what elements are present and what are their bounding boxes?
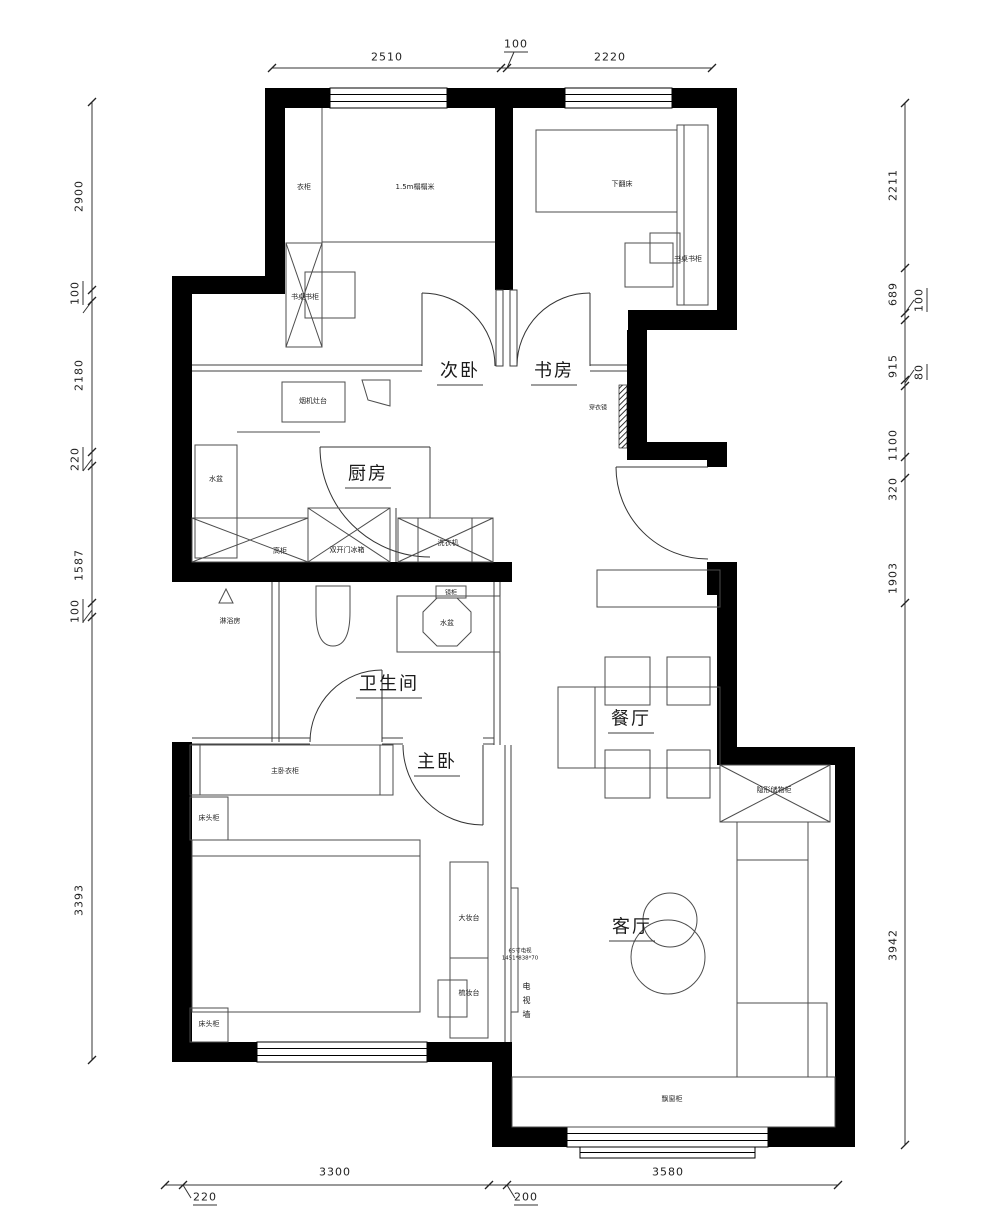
dim-bottom-3580: 3580 bbox=[652, 1166, 684, 1179]
label-mirror-cabinet: 镜柜 bbox=[445, 588, 457, 597]
dim-top-2510: 2510 bbox=[371, 51, 403, 64]
label-bay-window-cabinet: 飘窗柜 bbox=[662, 1094, 683, 1104]
label-bath-sink: 水盆 bbox=[440, 618, 454, 628]
dim-right-689: 689 bbox=[887, 282, 900, 306]
dim-left-220: 220 bbox=[69, 447, 84, 471]
label-desk-bookcase-bedroom2: 书桌书柜 bbox=[291, 292, 319, 302]
label-folding-bed: 下翻床 bbox=[612, 179, 633, 189]
room-label-master-bedroom: 主卧 bbox=[414, 748, 460, 777]
label-tv-spec: 65寸电视1451*838*70 bbox=[502, 948, 538, 962]
label-vanity: 梳妆台 bbox=[459, 988, 480, 998]
dim-left-100a: 100 bbox=[69, 281, 84, 305]
dressing-mirror-hatch bbox=[619, 385, 627, 448]
dim-right-80: 80 bbox=[913, 364, 928, 380]
dim-left-100b: 100 bbox=[69, 599, 84, 623]
floorplan-drawing bbox=[0, 0, 1000, 1230]
label-kitchen-sink: 水盆 bbox=[209, 474, 223, 484]
label-dressing-mirror: 穿衣镜 bbox=[589, 403, 607, 412]
label-desk-bookcase-study: 书桌书柜 bbox=[674, 254, 702, 264]
dim-bottom-3300: 3300 bbox=[319, 1166, 351, 1179]
dim-bottom-200: 200 bbox=[514, 1191, 538, 1206]
label-wardrobe: 衣柜 bbox=[297, 182, 311, 192]
dim-left-3393: 3393 bbox=[73, 884, 86, 916]
dim-left-1587: 1587 bbox=[73, 549, 86, 581]
room-label-bathroom: 卫生间 bbox=[356, 670, 422, 699]
dim-right-2211: 2211 bbox=[887, 169, 900, 201]
label-hidden-storage: 隐形储物柜 bbox=[757, 785, 792, 795]
room-label-kitchen: 厨房 bbox=[345, 460, 391, 489]
label-tv-wall: 电视墙 bbox=[522, 982, 530, 1024]
label-washer: 洗衣机 bbox=[438, 538, 459, 548]
label-stove-counter: 烟机灶台 bbox=[299, 396, 327, 406]
dim-right-1903: 1903 bbox=[887, 562, 900, 594]
thin-partitions bbox=[192, 290, 627, 1042]
dim-right-100: 100 bbox=[913, 288, 928, 312]
floorplan: 次卧 书房 厨房 卫生间 主卧 餐厅 客厅 衣柜 1.5m榻榻米 书桌书柜 下翻… bbox=[0, 0, 1000, 1230]
label-nightstand-top: 床头柜 bbox=[199, 813, 220, 823]
dim-left-2180: 2180 bbox=[73, 359, 86, 391]
label-nightstand-bottom: 床头柜 bbox=[199, 1019, 220, 1029]
dim-top-2220: 2220 bbox=[594, 51, 626, 64]
room-label-study: 书房 bbox=[531, 357, 577, 386]
label-fridge: 双开门冰箱 bbox=[330, 545, 365, 555]
dim-bottom-220: 220 bbox=[193, 1191, 217, 1206]
room-label-dining: 餐厅 bbox=[608, 705, 654, 734]
room-label-bedroom2: 次卧 bbox=[437, 357, 483, 386]
dim-right-1100: 1100 bbox=[887, 429, 900, 461]
dim-right-320: 320 bbox=[887, 477, 900, 501]
label-vanity-large: 大妆台 bbox=[459, 913, 480, 923]
room-label-living: 客厅 bbox=[609, 913, 655, 942]
label-tall-cabinet: 高柜 bbox=[273, 546, 287, 556]
tv-spec-line1: 65寸电视 bbox=[508, 948, 531, 954]
dim-right-915: 915 bbox=[887, 354, 900, 378]
dim-right-3942: 3942 bbox=[887, 929, 900, 961]
walls bbox=[172, 88, 855, 1147]
label-tatami: 1.5m榻榻米 bbox=[396, 182, 435, 192]
tv-spec-line2: 1451*838*70 bbox=[502, 955, 538, 961]
dim-top-100: 100 bbox=[504, 38, 528, 53]
label-shower-room: 淋浴房 bbox=[220, 616, 241, 626]
label-master-wardrobe: 主卧衣柜 bbox=[271, 766, 299, 776]
dim-left-2900: 2900 bbox=[73, 180, 86, 212]
